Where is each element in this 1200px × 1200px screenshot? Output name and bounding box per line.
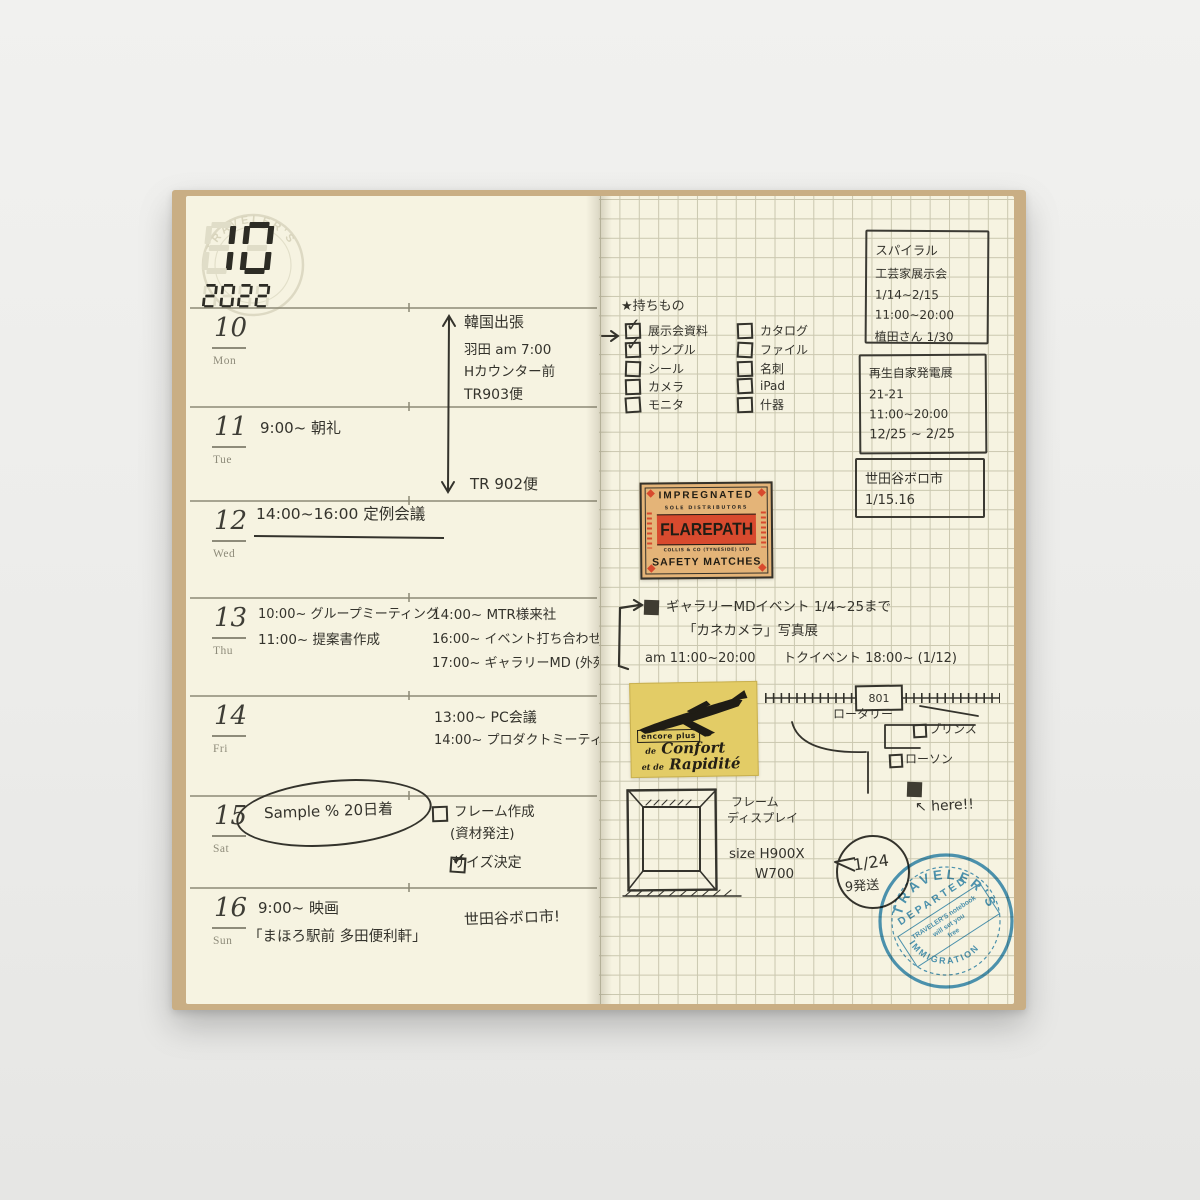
checkbox-icon (737, 396, 754, 413)
frame-label: フレーム (731, 796, 779, 810)
packing-item-label: シール (648, 360, 684, 377)
weekday-label: Fri (213, 743, 228, 755)
matchbox-brand: FLAREPATH (660, 519, 753, 541)
weekday-label: Wed (213, 548, 235, 560)
trip-detail: 羽田 am 7:00 (464, 343, 551, 359)
frame-size-note: size H900X (729, 847, 805, 863)
checkbox-icon (737, 341, 754, 358)
date-label: 10 (214, 313, 247, 343)
sticker-script-small: de (645, 746, 656, 756)
note-text: スパイラル (875, 240, 979, 260)
packing-item-label: 什器 (760, 396, 784, 413)
date-underline (212, 927, 246, 929)
stamp-arc-bottom-text: IMMIGRATION (907, 938, 981, 965)
return-flight-note: TR 902便 (470, 476, 538, 493)
task-label-sub: (資材発注) (450, 827, 515, 843)
note-text: 1/15.16 (865, 493, 975, 508)
packing-item: ファイル (737, 341, 808, 358)
date-underline (212, 637, 246, 639)
map-poi-label: ローソン (905, 753, 953, 767)
notebook-photo: TRAVELER'S 10 Mon 11 Tue 12 Wed 13 Thu 1… (0, 0, 1200, 1200)
packing-list-header: ★持ちもの (621, 300, 685, 315)
map-here-label: ↖ here!! (915, 796, 975, 815)
week-rule-line (190, 500, 597, 502)
note-box-exhibition: 再生自家発電展 21-21 11:00~20:00 12/25 ~ 2/25 (859, 354, 988, 455)
month-display (204, 222, 280, 274)
grid-memo-page: ★持ちもの 展示会資料 サンプル シール カメラ モニタ カタログ ファイル 名… (599, 196, 1014, 1004)
packing-item-label: 展示会資料 (648, 322, 708, 339)
packing-item-label: iPad (760, 379, 785, 393)
frame-size-note: W700 (755, 867, 794, 883)
packing-item: シール (625, 360, 684, 377)
svg-text:IMMIGRATION: IMMIGRATION (907, 938, 981, 965)
matchbox-side-text (761, 511, 766, 547)
day-entry: 11:00~ 提案書作成 (258, 633, 380, 649)
note-text: 11:00~20:00 (869, 407, 977, 422)
day-entry: 17:00~ ギャラリーMD (外苑) (432, 657, 611, 672)
filled-checkbox-icon (644, 600, 660, 616)
packing-item: カメラ (625, 378, 684, 395)
weekly-page: TRAVELER'S 10 Mon 11 Tue 12 Wed 13 Thu 1… (186, 196, 599, 1004)
rule-tick (408, 303, 410, 312)
packing-item: iPad (737, 378, 785, 394)
day-entry: 9:00~ 朝礼 (260, 420, 341, 437)
date-label: 13 (214, 603, 247, 633)
day-entry: 9:00~ 映画 (258, 900, 339, 917)
week-rule-line (190, 597, 597, 599)
gallery-event-line: トクイベント 18:00~ (1/12) (783, 652, 957, 667)
sticker-script-small: et de (642, 762, 664, 772)
date-label: 11 (214, 412, 247, 442)
note-text: 工芸家展示会 (875, 265, 979, 283)
day-entry: 14:00~16:00 定例会議 (256, 506, 425, 524)
gallery-event-line: ギャラリーMDイベント 1/4~25まで (666, 600, 891, 616)
packing-item: 什器 (737, 396, 784, 413)
rule-tick (408, 691, 410, 700)
note-text: 12/25 ~ 2/25 (869, 427, 977, 443)
date-label: 14 (214, 701, 247, 731)
trip-detail: TR903便 (464, 387, 523, 403)
packing-item-label: カメラ (648, 378, 684, 395)
date-underline (212, 540, 246, 542)
weekday-label: Thu (213, 645, 233, 657)
checkbox-icon (737, 360, 754, 377)
checkbox-icon (737, 378, 754, 395)
packing-item-label: ファイル (760, 341, 808, 358)
map-rotary-label: ロータリー (833, 708, 893, 722)
date-underline (212, 735, 246, 737)
sticker-script-line: et de Rapidité (641, 754, 740, 774)
arrow-icon (600, 328, 624, 344)
matchbox-red-band: FLAREPATH (657, 514, 756, 546)
map-poi-box (913, 724, 928, 739)
date-label: 12 (214, 506, 247, 536)
note-box-boroichi: 世田谷ボロ市 1/15.16 (855, 458, 985, 518)
date-label: 16 (214, 893, 247, 923)
map-poi-label: プリンス (929, 723, 977, 737)
side-note: 世田谷ボロ市! (464, 908, 561, 929)
weekday-label: Mon (213, 355, 236, 367)
week-rule-line (190, 406, 597, 408)
rule-tick (408, 883, 410, 892)
matchbox-bottom-text: SAFETY MATCHES (642, 555, 771, 568)
frame-label: ディスプレイ (727, 812, 798, 826)
trip-title: 韓国出張 (464, 314, 524, 331)
packing-item-label: モニタ (648, 396, 684, 413)
day-entry: 13:00~ PC会議 (434, 710, 537, 726)
date-underline (212, 446, 246, 448)
packing-item: サンプル (625, 341, 696, 358)
gallery-event-line: am 11:00~20:00 (645, 652, 756, 667)
rule-tick (408, 496, 410, 505)
matchbox-side-text (647, 512, 652, 548)
day-entry: 16:00~ イベント打ち合わせ (432, 633, 602, 648)
task-label: サイズ決定 (452, 855, 522, 871)
rule-tick (408, 402, 410, 411)
date-underline (212, 347, 246, 349)
packing-item: 名刺 (737, 360, 784, 377)
trip-detail: Hカウンター前 (464, 365, 555, 381)
weekday-label: Tue (213, 454, 232, 466)
packing-item-label: サンプル (648, 341, 696, 358)
map-poi-box (889, 754, 904, 769)
weekday-label: Sat (213, 843, 229, 855)
task-label: フレーム作成 (454, 805, 535, 821)
note-text: 世田谷ボロ市 (865, 468, 975, 487)
note-box-spiral: スパイラル 工芸家展示会 1/14~2/15 11:00~20:00 植田さん … (865, 230, 990, 345)
note-text: 1/14~2/15 (875, 288, 979, 303)
note-text: 11:00~20:00 (875, 308, 979, 323)
note-text: 再生自家発電展 (869, 364, 977, 382)
checkbox-icon (625, 360, 642, 377)
note-text: 植田さん 1/30 (875, 328, 979, 346)
station-label: 801 (869, 692, 890, 705)
departed-immigration-stamp: TRAVELER'S IMMIGRATION DEPARTED TRAVELER… (871, 846, 1021, 996)
rule-tick (408, 593, 410, 602)
packing-item: カタログ (737, 322, 808, 339)
task-checkbox (432, 806, 449, 823)
day-entry: 10:00~ グループミーティング (258, 608, 439, 623)
checkbox-icon (625, 378, 642, 395)
day-entry: 14:00~ MTR様来社 (432, 608, 556, 624)
weekday-label: Sun (213, 935, 232, 947)
note-text: 21-21 (869, 387, 977, 402)
hand-underline (254, 535, 444, 539)
gallery-event-line: 「カネカメラ」写真展 (683, 624, 818, 640)
matchbox-sub-text: SOLE DISTRIBUTORS (642, 504, 771, 511)
checkbox-icon (625, 341, 642, 358)
destination-marker (907, 782, 923, 798)
week-rule-line (190, 695, 597, 697)
packing-item-label: 名刺 (760, 360, 784, 377)
sticker-script-word: Rapidité (669, 754, 741, 773)
week-rule-line (190, 887, 597, 889)
checkbox-icon (737, 322, 754, 339)
day-entry: 「まほろ駅前 多田便利軒」 (248, 929, 427, 946)
matchbox-sticker: IMPREGNATED SOLE DISTRIBUTORS FLAREPATH … (640, 481, 774, 579)
date-underline (212, 835, 246, 837)
checkbox-icon (624, 396, 641, 413)
week-rule-line (190, 307, 597, 309)
packing-item: モニタ (625, 396, 684, 413)
packing-item-label: カタログ (760, 322, 808, 339)
airplane-sticker: encore plus de Confort et de Rapidité (629, 681, 759, 778)
trip-duration-arrow (434, 308, 464, 500)
year-display (203, 284, 273, 308)
matchbox-top-text: IMPREGNATED (642, 489, 771, 501)
